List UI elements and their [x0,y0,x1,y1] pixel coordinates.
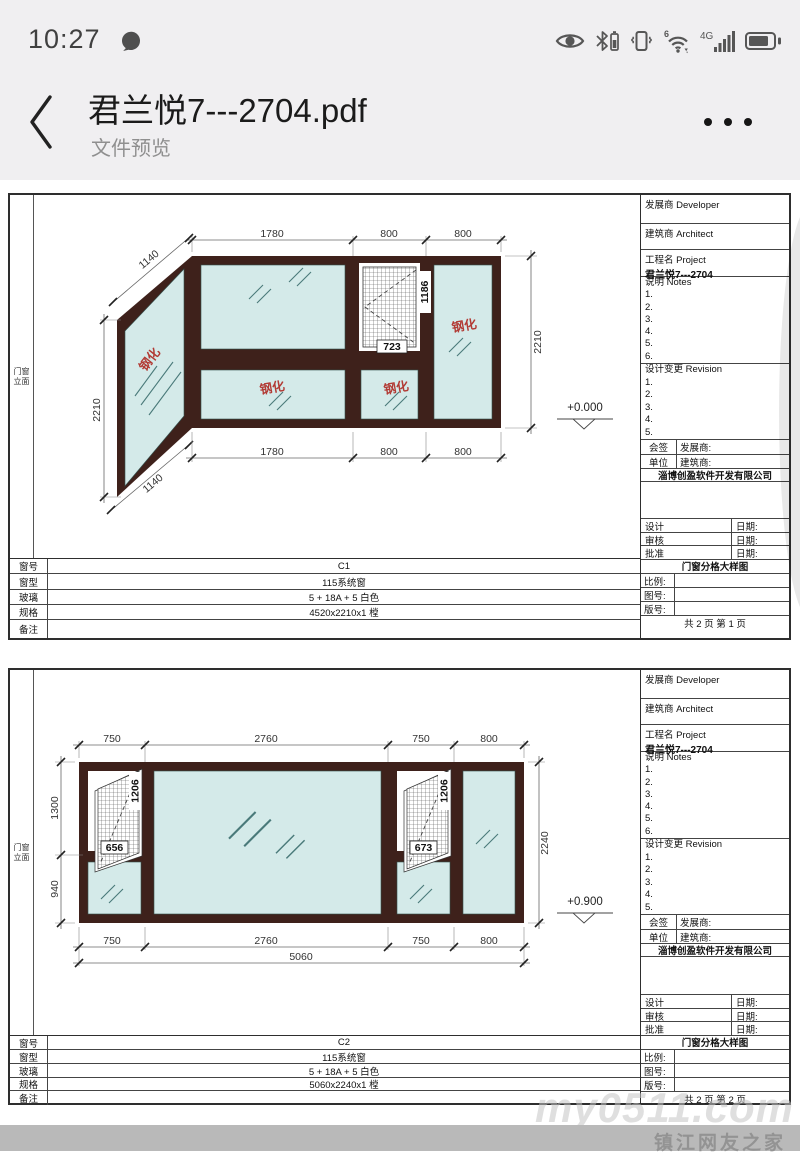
window-elevation-c1: 1186 723 钢化 钢化 钢化 钢化 1780 800 800 1140 [35,195,641,558]
battery-icon [745,30,782,52]
drawing-type-title: 门窗分格大样图 [641,560,789,574]
svg-text:1780: 1780 [260,446,284,458]
win-type-value: 115系统窗 [48,574,640,590]
svg-text:750: 750 [103,935,121,947]
size-value: 4520x2210x1 樘 [48,605,640,620]
mesh-width-label: 723 [383,341,401,353]
svg-text:1780: 1780 [260,228,284,240]
drawing-area-1: 门窗 立面 [10,195,640,558]
svg-text:800: 800 [454,446,472,458]
level-marker-label: +0.900 [567,896,603,908]
clock: 10:27 [28,24,101,55]
sash-height-label: 1206 [439,779,451,803]
page-subtitle: 文件预览 [91,132,171,161]
signal-strength-icon: 4G [700,28,736,54]
sash-height-label: 1206 [130,779,142,803]
svg-text:2210: 2210 [91,398,103,422]
notification-chat-icon [120,30,142,57]
top-bar: 10:27 6 4G [0,0,800,180]
svg-text:800: 800 [380,228,398,240]
more-menu-button[interactable] [704,118,752,126]
company-name: 淄博创盈软件开发有限公司 [641,944,789,957]
svg-text:2760: 2760 [254,733,278,745]
mesh-height-label: 1186 [419,280,431,303]
title-block: 发展商 Developer 建筑商 Architect 工程名 Project君… [640,670,789,1103]
sash-width-label: 656 [106,842,124,854]
window-elevation-c2: 1206 656 1206 673 750 2760 750 800 1300 [35,670,641,1035]
back-button[interactable] [26,92,56,152]
svg-text:800: 800 [380,446,398,458]
win-no-value: C1 [48,559,640,574]
chevron-left-icon [26,92,56,152]
svg-text:2760: 2760 [254,935,278,947]
remark-value [48,620,640,638]
svg-text:800: 800 [480,733,498,745]
screen-mesh-panel [363,267,416,347]
svg-text:750: 750 [412,733,430,745]
svg-text:4G: 4G [700,31,714,42]
window-spec-table: 窗号C1 窗型115系统窗 玻璃5 + 18A + 5 白色 规格4520x22… [10,558,640,638]
drawing-type-title: 门窗分格大样图 [641,1036,789,1050]
drawing-area-2: 门窗 立面 [10,670,640,1035]
svg-text:750: 750 [103,733,121,745]
win-no-value: C2 [48,1036,640,1050]
svg-text:6: 6 [664,29,669,39]
wifi-icon: 6 [663,28,691,54]
pdf-page-2: 门窗 立面 [8,668,791,1105]
glass-value: 5 + 18A + 5 白色 [48,1064,640,1078]
total-width-label: 5060 [289,951,313,963]
title-block: 发展商 Developer 建筑商 Architect 工程名 Project君… [640,195,789,638]
svg-text:800: 800 [454,228,472,240]
svg-text:940: 940 [49,880,61,898]
svg-text:1140: 1140 [141,472,166,496]
svg-text:1300: 1300 [49,796,61,820]
svg-text:2210: 2210 [532,330,544,354]
bluetooth-battery-icon [594,29,620,53]
elevation-side-label: 门窗 立面 [10,195,34,558]
vibrate-icon [629,29,654,53]
win-type-value: 115系统窗 [48,1050,640,1064]
status-icons: 6 4G [555,28,782,54]
level-marker-label: +0.000 [567,402,603,414]
file-title: 君兰悦7---2704.pdf [88,84,367,132]
pdf-page-1: 门窗 立面 [8,193,791,640]
sash-width-label: 673 [415,842,433,854]
eye-comfort-icon [555,30,585,52]
svg-text:750: 750 [412,935,430,947]
glass-value: 5 + 18A + 5 白色 [48,590,640,605]
elevation-side-label: 门窗 立面 [10,670,34,1035]
page-number: 共 2 页 第 1 页 [641,616,789,630]
company-name: 淄博创盈软件开发有限公司 [641,469,789,482]
svg-text:800: 800 [480,935,498,947]
svg-text:1140: 1140 [137,248,162,272]
svg-text:2240: 2240 [539,831,551,855]
